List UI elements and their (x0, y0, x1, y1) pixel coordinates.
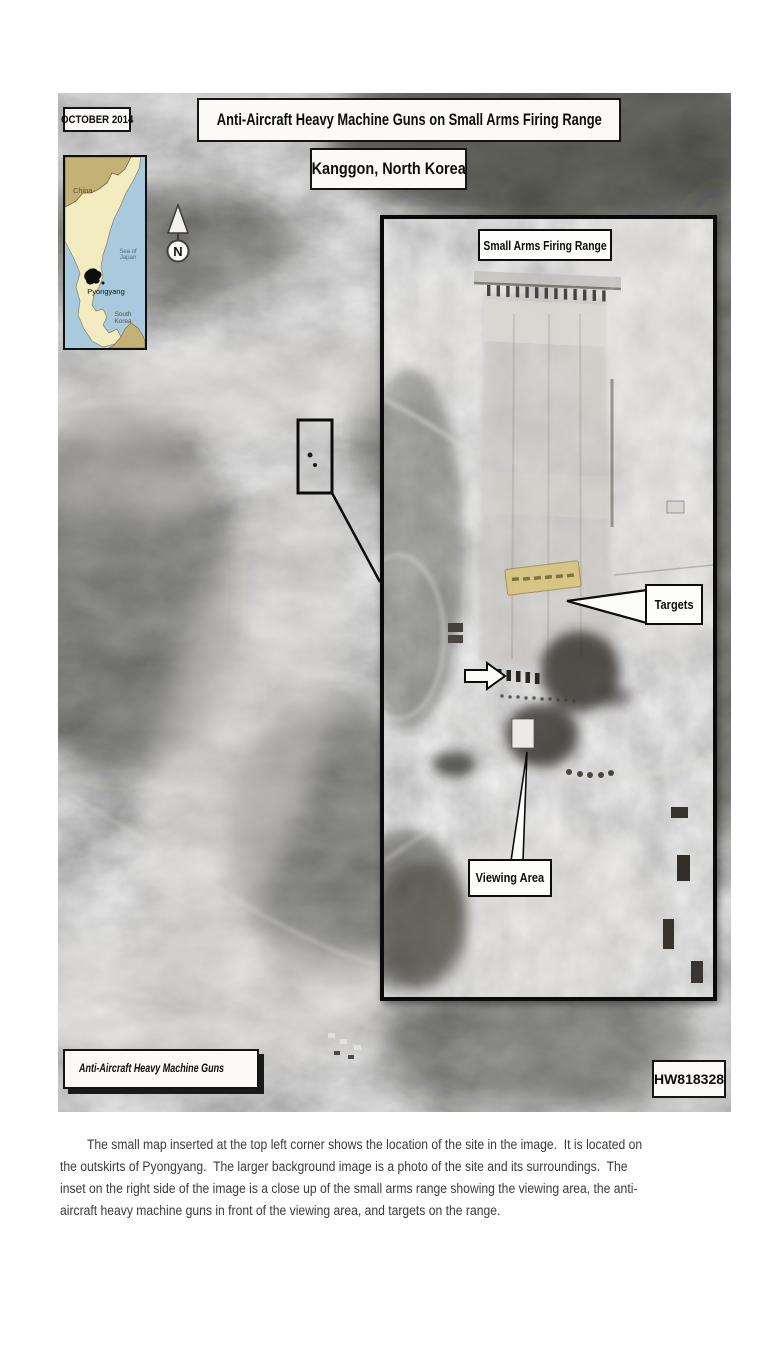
figure-title: Anti-Aircraft Heavy Machine Guns on Smal… (216, 110, 601, 130)
image-id: HW818328 (654, 1071, 724, 1087)
north-arrow: N (166, 203, 190, 265)
viewing-area-callout-box: Viewing Area (468, 859, 552, 897)
range-callout-box: Small Arms Firing Range (478, 229, 612, 261)
date-label: OCTOBER 2014 (61, 114, 133, 126)
pyongyang-label: Pyongyang (75, 288, 137, 296)
targets-callout-label: Targets (655, 598, 694, 612)
viewing-area-callout-label: Viewing Area (476, 871, 544, 885)
date-badge: OCTOBER 2014 (63, 107, 131, 132)
legend: Anti-Aircraft Heavy Machine Guns (63, 1049, 259, 1089)
page: { "page": { "date_label": "OCTOBER 2014"… (0, 0, 768, 1358)
annotated-satellite-figure: OCTOBER 2014 Anti-Aircraft Heavy Machine… (58, 93, 731, 1112)
sea-of-japan-label: Sea of Japan (115, 249, 141, 262)
legend-label: Anti-Aircraft Heavy Machine Guns (79, 1063, 224, 1075)
firing-range-field (479, 293, 613, 667)
north-arrow-icon: N (166, 203, 190, 265)
image-id-badge: HW818328 (652, 1060, 726, 1098)
caption-line: inset on the right side of the image is … (60, 1178, 681, 1200)
viewing-area-building (512, 719, 534, 748)
targets-callout-box: Targets (645, 584, 703, 625)
coast-dot (102, 282, 105, 285)
figure-title-box: Anti-Aircraft Heavy Machine Guns on Smal… (197, 98, 621, 142)
south-korea-label: South Korea (107, 312, 139, 326)
locator-map: China Sea of Japan Pyongyang South Korea (63, 155, 147, 350)
caption-line: The small map inserted at the top left c… (60, 1134, 681, 1156)
caption: The small map inserted at the top left c… (60, 1134, 750, 1222)
north-letter: N (173, 244, 182, 259)
caption-line: aircraft heavy machine guns in front of … (60, 1200, 681, 1222)
figure-subtitle: Kanggon, North Korea (311, 159, 465, 179)
china-label: China (73, 187, 93, 195)
figure-subtitle-box: Kanggon, North Korea (310, 148, 467, 190)
closeup-inset: Small Arms Firing Range Targets Viewing … (380, 215, 717, 1001)
caption-line: the outskirts of Pyongyang. The larger b… (60, 1156, 681, 1178)
range-callout-label: Small Arms Firing Range (483, 238, 606, 253)
